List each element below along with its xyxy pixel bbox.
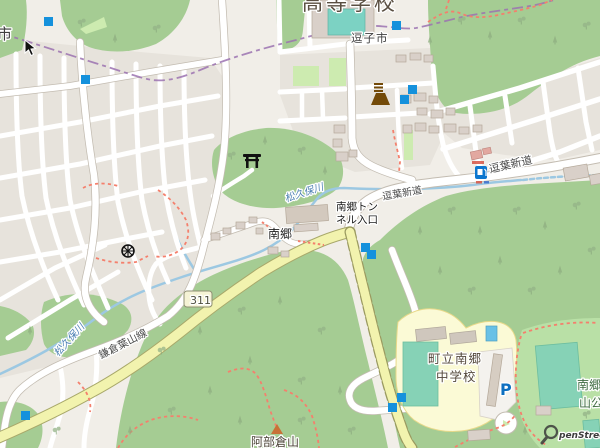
label-shield-311: 311 — [190, 294, 211, 307]
label-zushi-city: 逗子市 — [351, 31, 389, 45]
map-marker[interactable] — [400, 95, 409, 104]
label-abekura: 阿部倉山 — [251, 434, 299, 448]
map-marker[interactable] — [408, 85, 417, 94]
label-tunnel-line2: ネル入口 — [336, 214, 378, 226]
label-osm-attribution: penStreetMap — [558, 431, 600, 441]
label-nango: 南郷 — [268, 226, 292, 241]
map-marker[interactable] — [21, 411, 30, 420]
map-marker[interactable] — [392, 21, 401, 30]
buddhist-temple-icon — [122, 245, 134, 257]
swimming-pool — [486, 326, 497, 341]
label-chugakko-line1: 町立南郷 — [428, 351, 482, 366]
label-park-line2: 山公園 — [579, 396, 600, 410]
map-canvas[interactable]: 高等学校逗子市市南郷トンネル入口南郷逗葉新道逗葉新道松久保川松久保川鎌倉葉山線3… — [0, 0, 600, 448]
turnaround-circle — [495, 412, 517, 434]
label-parking: P — [500, 380, 512, 399]
map-marker[interactable] — [397, 393, 406, 402]
label-chugakko-line2: 中学校 — [436, 369, 477, 384]
label-city-edge: 市 — [0, 25, 12, 43]
label-school-top: 高等学校 — [302, 0, 398, 15]
map-marker[interactable] — [388, 403, 397, 412]
map-marker[interactable] — [81, 75, 90, 84]
label-park-line1: 南郷上 — [577, 377, 600, 392]
map-marker[interactable] — [44, 17, 53, 26]
map-marker[interactable] — [367, 250, 376, 259]
label-tunnel-line1: 南郷トン — [336, 200, 378, 213]
